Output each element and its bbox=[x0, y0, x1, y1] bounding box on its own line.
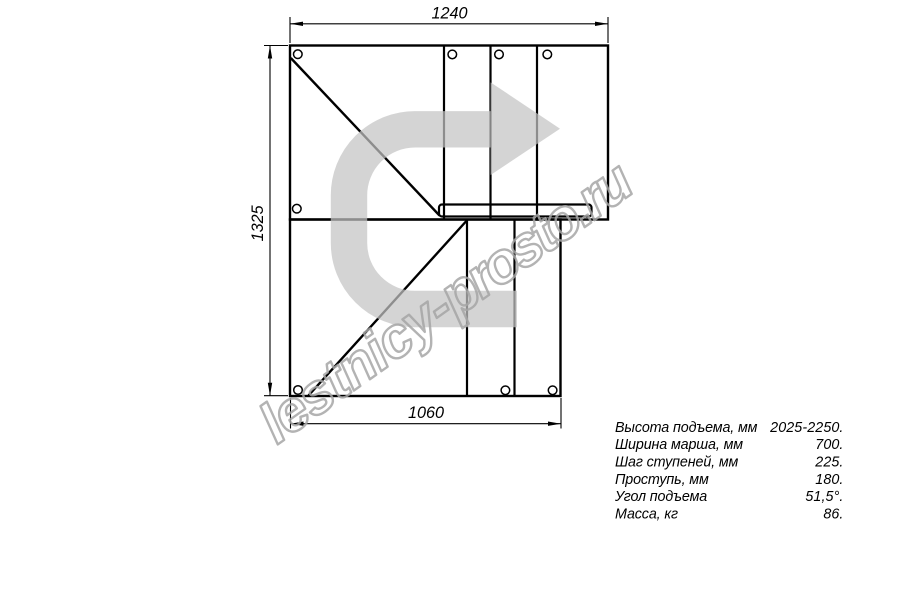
svg-text:Ширина марша, мм: Ширина марша, мм bbox=[615, 437, 743, 453]
svg-text:1325: 1325 bbox=[249, 204, 267, 241]
svg-text:Высота подъема, мм: Высота подъема, мм bbox=[615, 420, 758, 436]
svg-text:lestnicy-prosto.ru: lestnicy-prosto.ru bbox=[248, 149, 645, 456]
svg-text:51,5°.: 51,5°. bbox=[805, 489, 843, 505]
svg-text:Угол подъема: Угол подъема bbox=[614, 489, 707, 505]
svg-text:225.: 225. bbox=[814, 455, 843, 471]
svg-text:180.: 180. bbox=[815, 472, 843, 488]
svg-text:700.: 700. bbox=[815, 437, 843, 453]
svg-text:2025-2250.: 2025-2250. bbox=[769, 420, 843, 436]
svg-text:Проступь, мм: Проступь, мм bbox=[615, 472, 709, 488]
svg-text:Масса, кг: Масса, кг bbox=[615, 507, 678, 523]
svg-text:86.: 86. bbox=[823, 507, 843, 523]
svg-text:1060: 1060 bbox=[408, 404, 444, 422]
svg-text:1240: 1240 bbox=[431, 4, 467, 22]
svg-text:Шаг ступеней, мм: Шаг ступеней, мм bbox=[615, 455, 739, 471]
